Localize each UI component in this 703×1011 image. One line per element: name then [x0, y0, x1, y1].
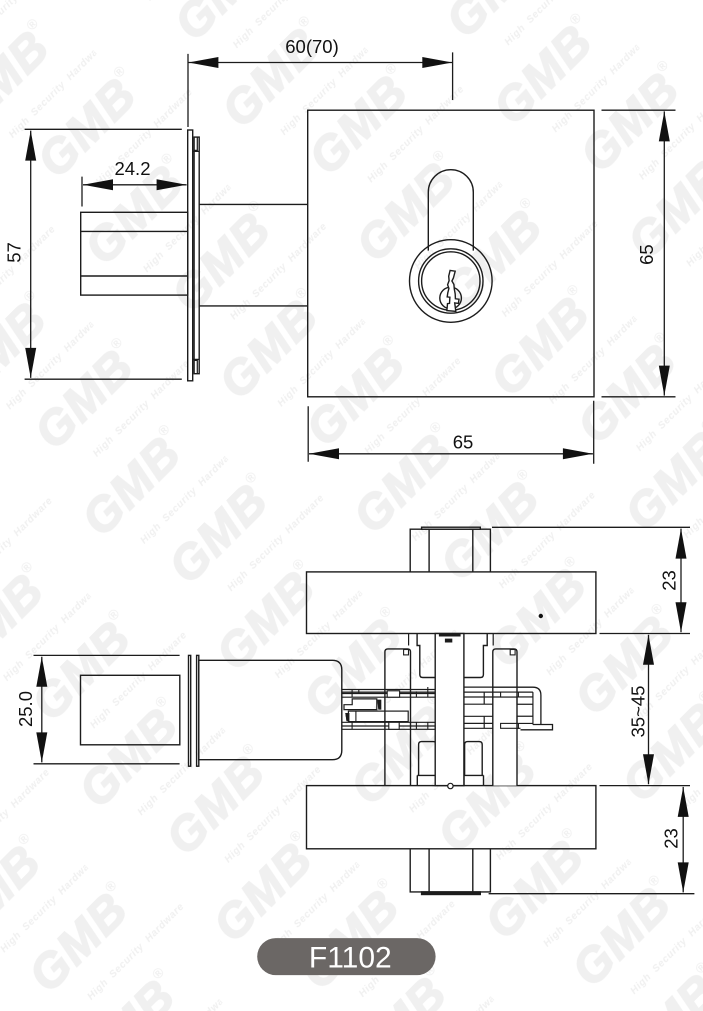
svg-text:65: 65: [453, 432, 474, 453]
svg-text:23: 23: [659, 570, 680, 591]
svg-text:65: 65: [636, 244, 657, 265]
svg-text:25.0: 25.0: [15, 691, 36, 727]
svg-text:F1102: F1102: [309, 941, 392, 974]
svg-text:35~45: 35~45: [628, 686, 649, 738]
svg-text:24.2: 24.2: [114, 158, 150, 179]
svg-text:60(70): 60(70): [285, 36, 338, 57]
svg-text:57: 57: [4, 242, 25, 263]
svg-text:23: 23: [661, 828, 682, 849]
